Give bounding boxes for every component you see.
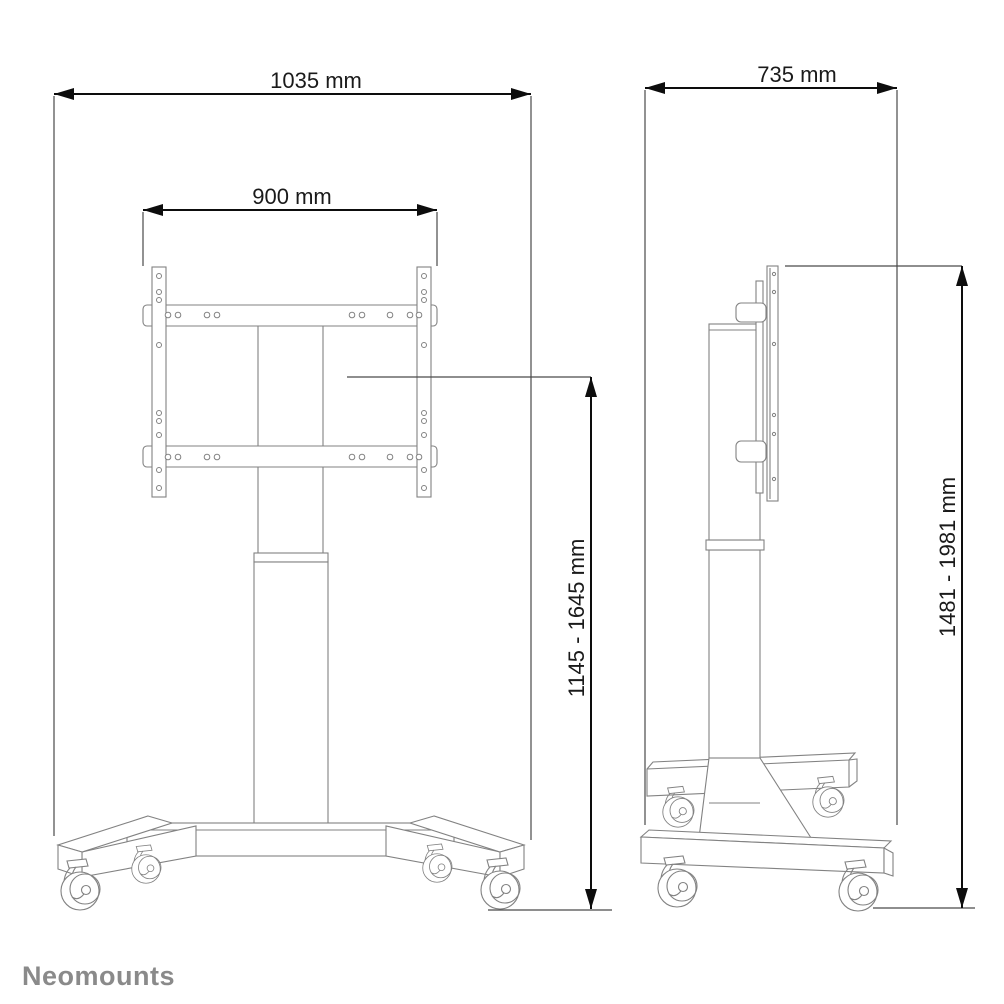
dim-bracket-width: 900 mm [143,184,437,216]
brand-logo: Neomounts [22,961,175,991]
dim-label-bracket-width: 900 mm [252,184,331,209]
dim-label-side-depth: 735 mm [757,62,836,87]
front-base [58,816,524,877]
front-lift-column [254,317,328,835]
side-view [641,90,897,911]
front-view [54,96,531,910]
dim-front-total-width: 1035 mm [54,68,531,100]
dim-label-front-height: 1145 - 1645 mm [564,539,589,698]
side-front-base [641,830,893,911]
dim-side-depth: 735 mm [645,62,897,94]
dimension-drawing: 1035 mm 900 mm 1145 - 1645 mm 735 mm [0,0,1004,1004]
technical-drawing-page: 1035 mm 900 mm 1145 - 1645 mm 735 mm [0,0,1004,1004]
dim-label-side-height: 1481 - 1981 mm [935,477,960,637]
dim-side-height: 1481 - 1981 mm [785,266,975,908]
dim-label-front-total-width: 1035 mm [270,68,362,93]
